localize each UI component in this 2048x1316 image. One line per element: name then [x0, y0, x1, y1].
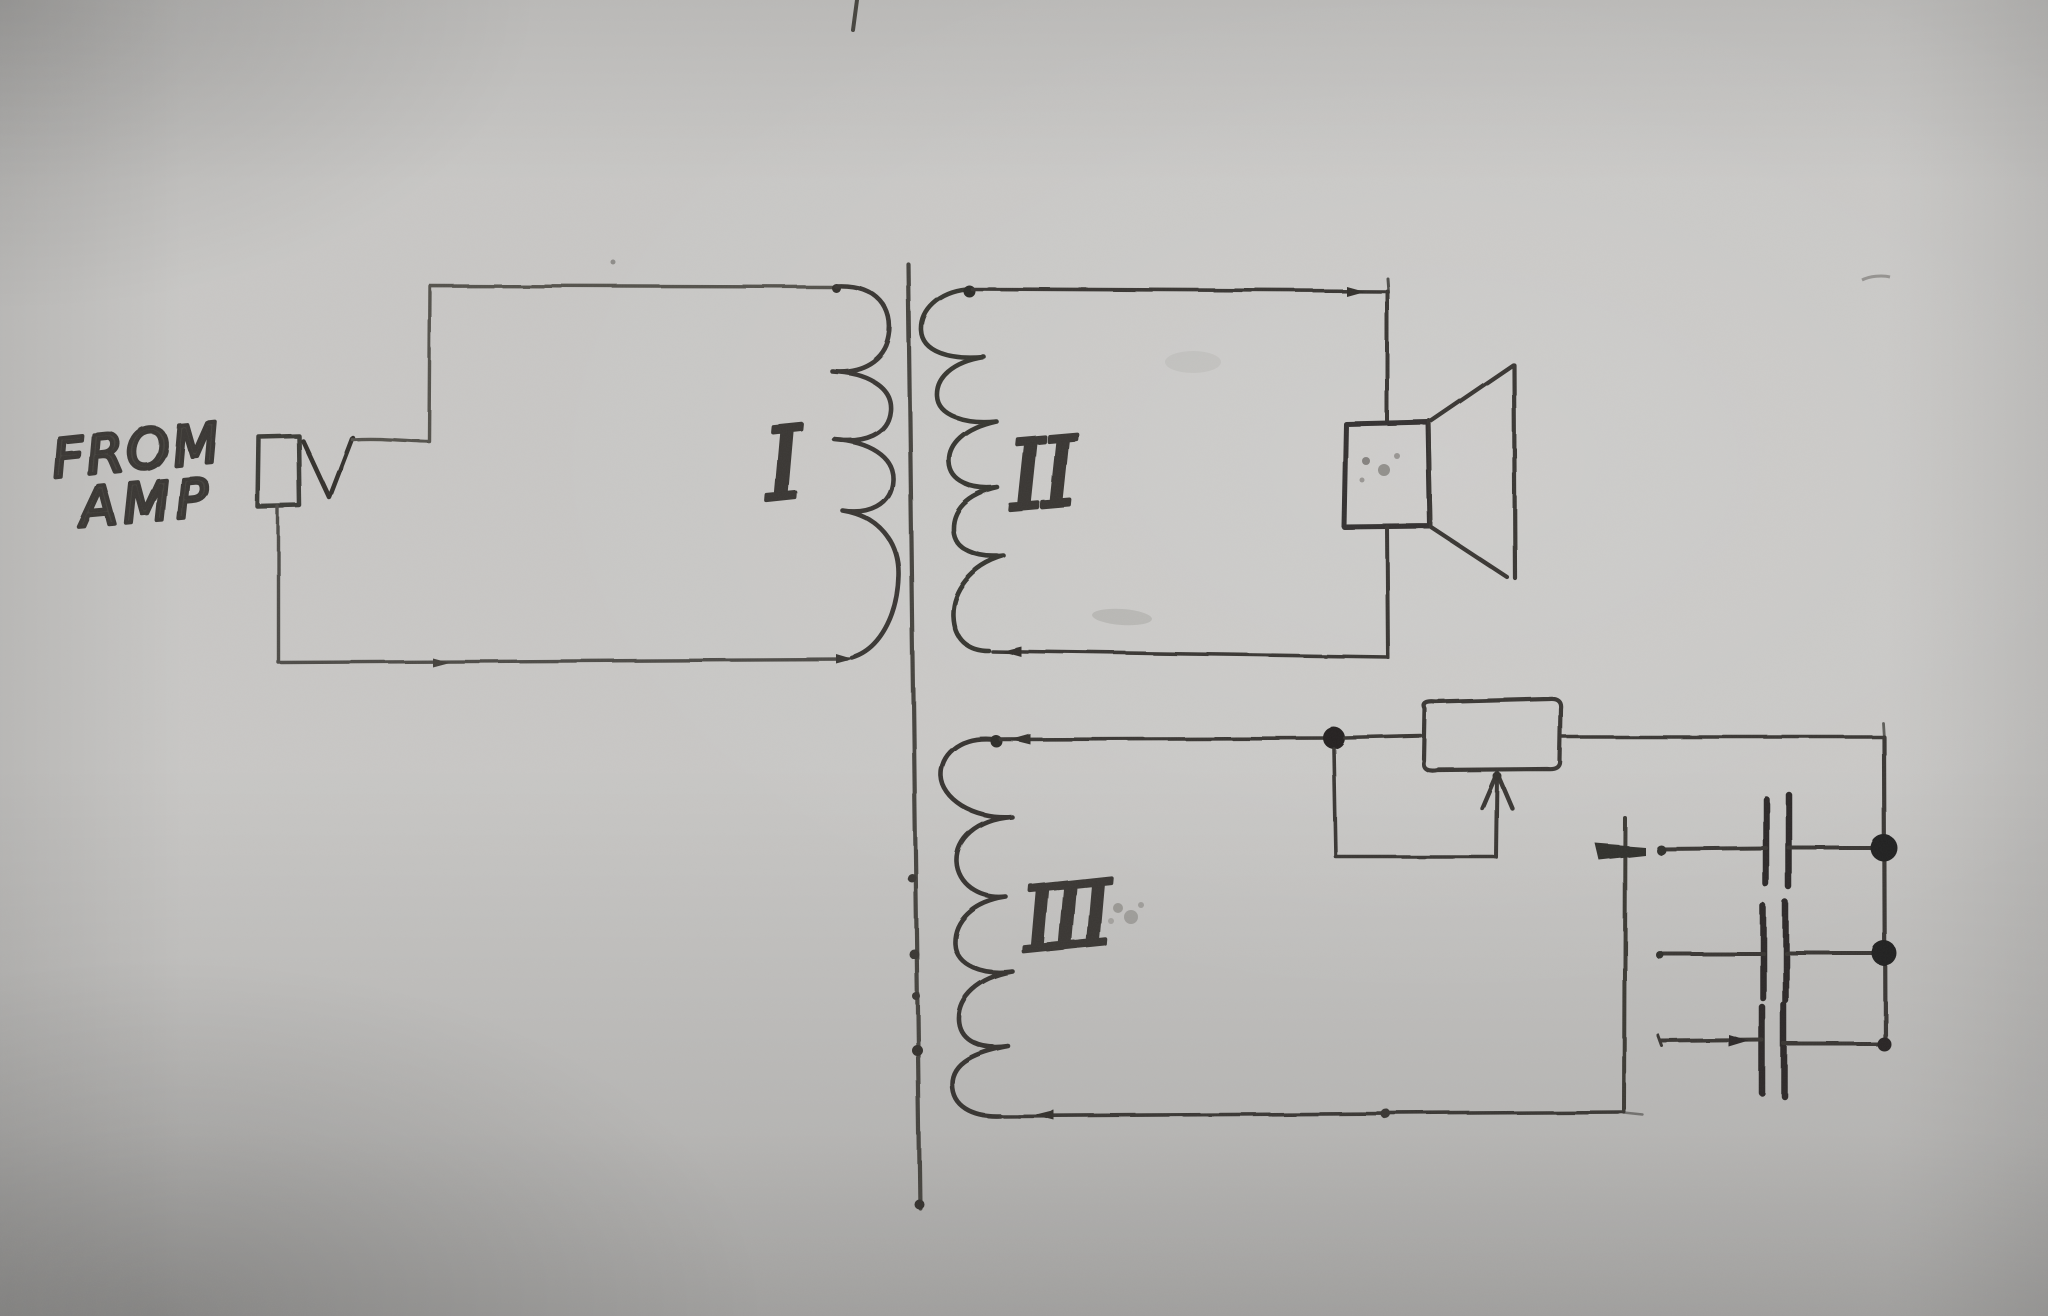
schematic-drawing: FROM AMP I II III [0, 0, 2048, 1316]
paper-grain [0, 0, 2048, 1316]
paper-photo: FROM AMP I II III [0, 0, 2048, 1316]
